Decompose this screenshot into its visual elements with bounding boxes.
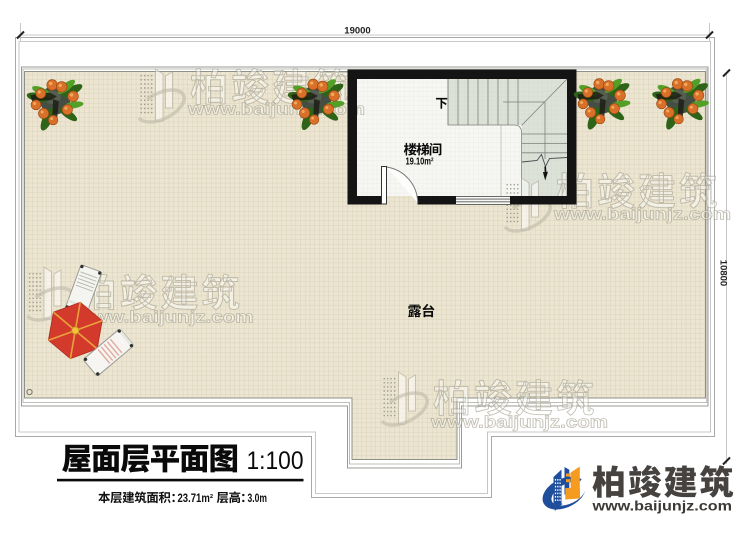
svg-text:3.0m: 3.0m <box>248 493 268 505</box>
svg-text:19.10m²: 19.10m² <box>406 157 435 168</box>
svg-text:www.baijunjz.com: www.baijunjz.com <box>591 499 732 514</box>
svg-text:1:100: 1:100 <box>247 447 304 475</box>
svg-text:www.baijunjz.com: www.baijunjz.com <box>430 414 608 432</box>
svg-text:23.71m²: 23.71m² <box>178 493 214 505</box>
svg-text:www.baijunjz.com: www.baijunjz.com <box>553 206 731 224</box>
svg-text:19000: 19000 <box>344 26 370 37</box>
svg-text:10800: 10800 <box>718 260 729 286</box>
